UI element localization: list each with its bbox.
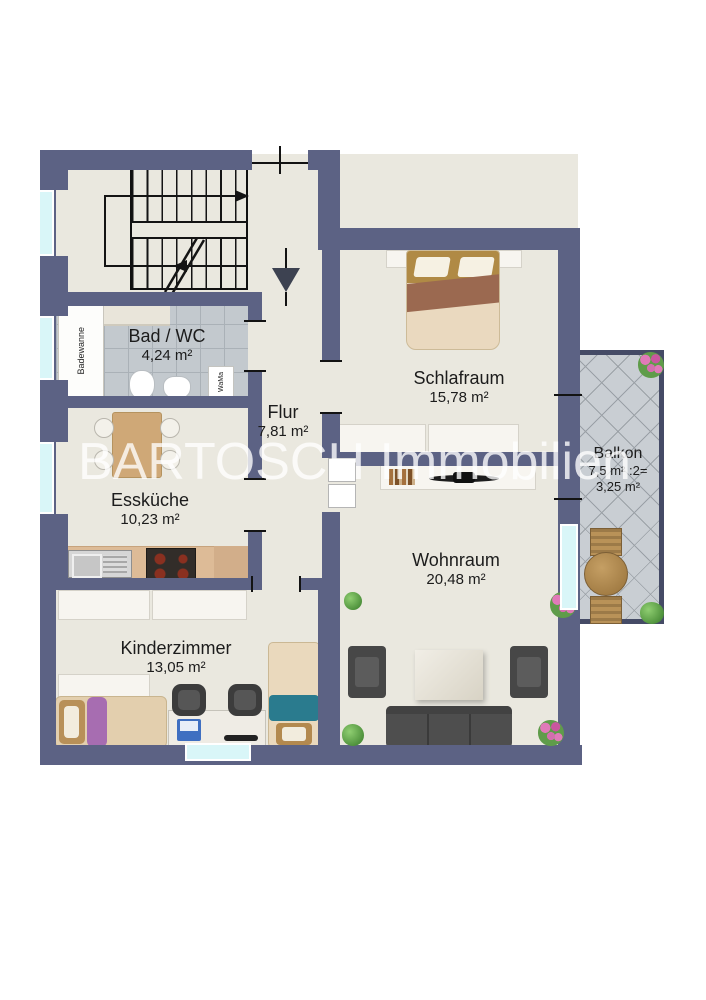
kids-wardrobe xyxy=(58,590,150,620)
wall-hall-right xyxy=(322,250,340,362)
armchair-seat xyxy=(355,657,379,687)
bathtub-label: Badewanne xyxy=(76,327,86,375)
kids-bed-right xyxy=(268,642,320,748)
pillow-inner xyxy=(64,706,79,738)
sink-basin xyxy=(72,554,102,578)
pillow-inner xyxy=(282,727,306,741)
wall-kitchen-kidsroom xyxy=(40,578,252,590)
room-label-wohnraum: Wohnraum 20,48 m² xyxy=(376,550,536,589)
chair-seat xyxy=(234,690,256,710)
chair-seat xyxy=(178,690,200,710)
wall-bottom-exterior xyxy=(40,745,582,765)
desk-accessory xyxy=(224,735,258,741)
door-tick xyxy=(244,320,266,322)
office-chair xyxy=(172,684,206,716)
window-stairwell xyxy=(38,190,54,256)
wall-left-pier xyxy=(40,380,68,442)
wall-right-exterior xyxy=(558,228,580,765)
sofa-back xyxy=(386,706,512,714)
office-chair xyxy=(228,684,262,716)
room-label-bad: Bad / WC 4,24 m² xyxy=(87,326,247,365)
flower-pot-balcony-top xyxy=(638,352,664,378)
wall-left-pier xyxy=(40,150,68,190)
door-tick xyxy=(299,576,301,592)
bath-shelf xyxy=(104,304,170,326)
window-tick xyxy=(554,498,582,500)
wall-left-pier xyxy=(40,514,68,580)
balcony-chair-bottom xyxy=(590,596,622,624)
room-label-schlafraum: Schlafraum 15,78 m² xyxy=(379,368,539,407)
door-tick xyxy=(251,576,253,592)
staircase-walking-line xyxy=(95,158,260,298)
kids-headboard-shelf xyxy=(58,674,150,698)
armchair-seat xyxy=(517,657,541,687)
room-area: 4,24 m² xyxy=(87,347,247,365)
balcony-door xyxy=(560,524,578,610)
room-area: 20,48 m² xyxy=(376,571,536,589)
wall-kidsroom-livingroom xyxy=(318,590,340,745)
washing-machine-label: WaMa xyxy=(218,372,225,392)
nightstand xyxy=(498,250,522,268)
entrance-arrow xyxy=(272,268,300,292)
kitchen-sink xyxy=(68,550,132,578)
laptop-screen xyxy=(180,721,198,731)
pillow xyxy=(457,257,495,277)
wall-stairwell-bath xyxy=(40,292,262,306)
pillow xyxy=(413,257,451,277)
window-tick xyxy=(554,394,582,396)
double-bed xyxy=(406,250,500,350)
coffee-table xyxy=(415,650,483,700)
entrance-door-tick xyxy=(279,146,281,174)
watermark: BARTOSCH Immobilien xyxy=(78,432,631,492)
window-kitchen xyxy=(38,442,54,514)
room-area: 10,23 m² xyxy=(70,511,230,529)
room-label-kinderzimmer: Kinderzimmer 13,05 m² xyxy=(96,638,256,677)
room-name: Kinderzimmer xyxy=(96,638,256,659)
room-area: 15,78 m² xyxy=(379,389,539,407)
balcony-table xyxy=(584,552,628,596)
room-name: Schlafraum xyxy=(379,368,539,389)
door-tick xyxy=(320,360,342,362)
entrance-arrow-tick xyxy=(285,292,287,306)
sofa xyxy=(386,706,512,748)
door-tick xyxy=(244,530,266,532)
armchair xyxy=(510,646,548,698)
room-area: 13,05 m² xyxy=(96,659,256,677)
window-kidsroom xyxy=(185,743,251,761)
plant-balcony-bottom xyxy=(640,602,664,624)
floor-plan: Badewanne WaMa xyxy=(0,0,706,1000)
door-tick xyxy=(244,370,266,372)
room-label-esskueche: Essküche 10,23 m² xyxy=(70,490,230,529)
wall-hall-right xyxy=(322,512,340,578)
wall-top-left xyxy=(40,150,252,170)
room-name: Flur xyxy=(203,402,363,423)
entrance-arrow-stem xyxy=(285,248,287,268)
kids-bed-left xyxy=(55,696,167,748)
sofa-cushion-divider xyxy=(469,710,471,746)
sofa-cushion-divider xyxy=(427,710,429,746)
wall-bedroom-top xyxy=(330,228,580,250)
room-name: Bad / WC xyxy=(87,326,247,347)
wall-kidsroom-top-right xyxy=(300,578,340,590)
kitchen-counter-end xyxy=(214,546,248,582)
cooktop xyxy=(146,548,196,582)
sink-drainboard xyxy=(103,555,127,573)
kids-wardrobe xyxy=(152,590,247,620)
blanket-purple xyxy=(87,697,107,747)
plant-livingroom-wall xyxy=(344,592,362,610)
plant-livingroom-left xyxy=(342,724,364,746)
room-name: Essküche xyxy=(70,490,230,511)
blanket-teal xyxy=(269,695,319,721)
plant-livingroom-right xyxy=(538,720,564,746)
wall-entrance-right xyxy=(318,150,340,250)
washing-machine: WaMa xyxy=(208,366,234,398)
armchair xyxy=(348,646,386,698)
room-name: Wohnraum xyxy=(376,550,536,571)
stairs-up-arrow xyxy=(235,190,249,202)
wall-left-pier xyxy=(40,256,68,316)
window-bathroom xyxy=(38,316,54,380)
